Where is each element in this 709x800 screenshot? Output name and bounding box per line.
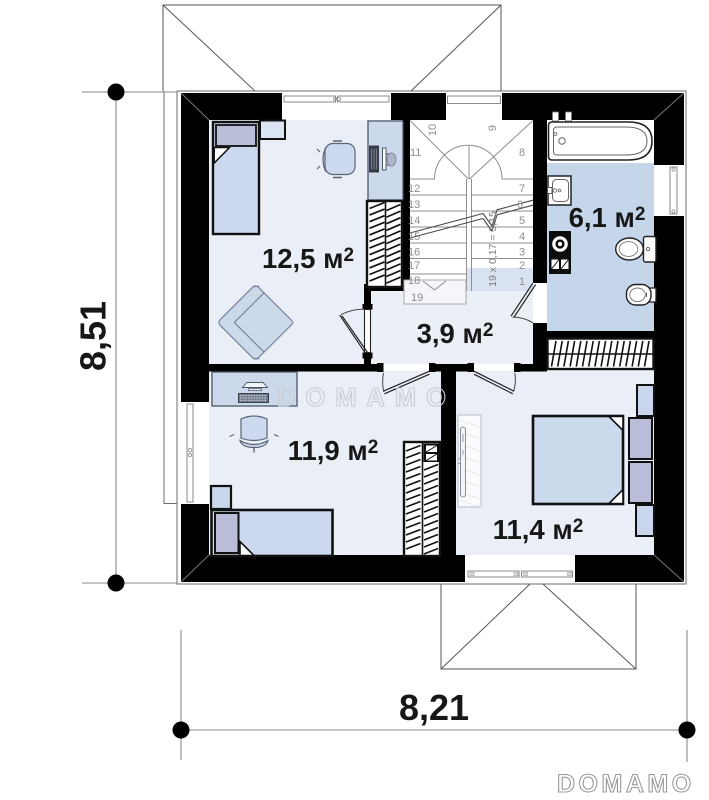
svg-text:3: 3 <box>519 247 525 259</box>
svg-text:DOMAMO: DOMAMO <box>557 770 695 798</box>
svg-text:11,4 м2: 11,4 м2 <box>493 514 584 545</box>
svg-text:2: 2 <box>519 260 525 272</box>
svg-text:8: 8 <box>519 147 525 159</box>
svg-text:16: 16 <box>408 247 420 259</box>
svg-text:6,1 м2: 6,1 м2 <box>569 202 646 233</box>
svg-text:8,21: 8,21 <box>399 687 469 728</box>
svg-text:4: 4 <box>519 231 525 243</box>
svg-text:3,9 м2: 3,9 м2 <box>417 318 494 349</box>
svg-text:13: 13 <box>408 199 420 211</box>
svg-text:5: 5 <box>519 215 525 227</box>
svg-text:DOMAMO: DOMAMO <box>277 384 456 412</box>
svg-text:14: 14 <box>408 215 420 227</box>
svg-text:18: 18 <box>408 275 420 287</box>
svg-text:11,9 м2: 11,9 м2 <box>288 435 379 466</box>
svg-text:10: 10 <box>427 124 439 136</box>
svg-text:12: 12 <box>408 183 420 195</box>
svg-text:8,51: 8,51 <box>73 301 114 371</box>
svg-text:9: 9 <box>487 125 499 131</box>
svg-text:17: 17 <box>408 260 420 272</box>
svg-text:19 x 0,17 = 3,15: 19 x 0,17 = 3,15 <box>487 211 499 287</box>
svg-text:19: 19 <box>411 292 423 304</box>
svg-text:7: 7 <box>519 183 525 195</box>
svg-text:12,5 м2: 12,5 м2 <box>262 243 354 274</box>
svg-text:15: 15 <box>408 231 420 243</box>
svg-text:1: 1 <box>519 276 525 288</box>
svg-text:11: 11 <box>410 147 421 159</box>
svg-text:6: 6 <box>517 199 523 211</box>
